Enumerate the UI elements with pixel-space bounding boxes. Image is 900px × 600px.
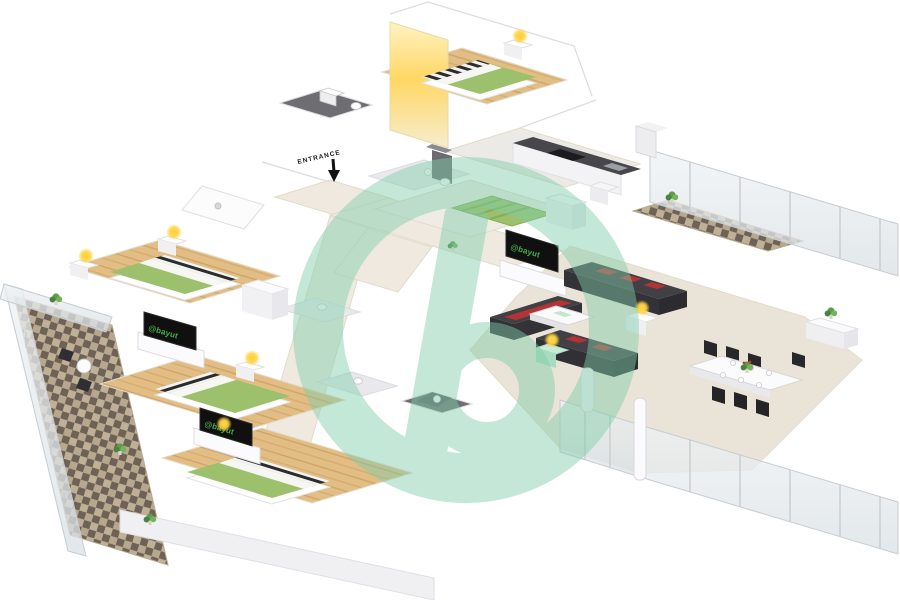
watermark-bowl <box>437 340 537 440</box>
wardrobe-side <box>272 289 288 320</box>
toilet-icon <box>351 103 361 110</box>
fridge-front <box>636 126 656 158</box>
balcony-table <box>77 359 91 373</box>
entrance: ENTRANCE <box>297 149 342 182</box>
kitchen-north-wall <box>520 100 596 128</box>
plant-icon <box>825 307 838 319</box>
tv-unit-bedroom1: @bayut <box>138 312 204 368</box>
lamp-icon <box>216 416 232 432</box>
northeast-glass-wall <box>650 150 898 276</box>
floor-plan-image: @bayut @bayut @bayut <box>0 0 900 600</box>
vanity-sink <box>215 203 221 209</box>
entry-vanity-room <box>182 186 264 229</box>
lamp-icon <box>512 28 528 44</box>
corner-post <box>634 398 646 480</box>
lamp-icon <box>244 350 260 366</box>
lamp-icon <box>166 224 182 240</box>
floor-plan-svg: @bayut @bayut @bayut <box>0 0 900 600</box>
lamp-icon <box>78 248 94 264</box>
left-wing-front-wall <box>120 510 434 600</box>
entrance-wall <box>262 162 330 182</box>
wardrobe <box>242 280 288 320</box>
lamp-icon <box>544 332 560 348</box>
